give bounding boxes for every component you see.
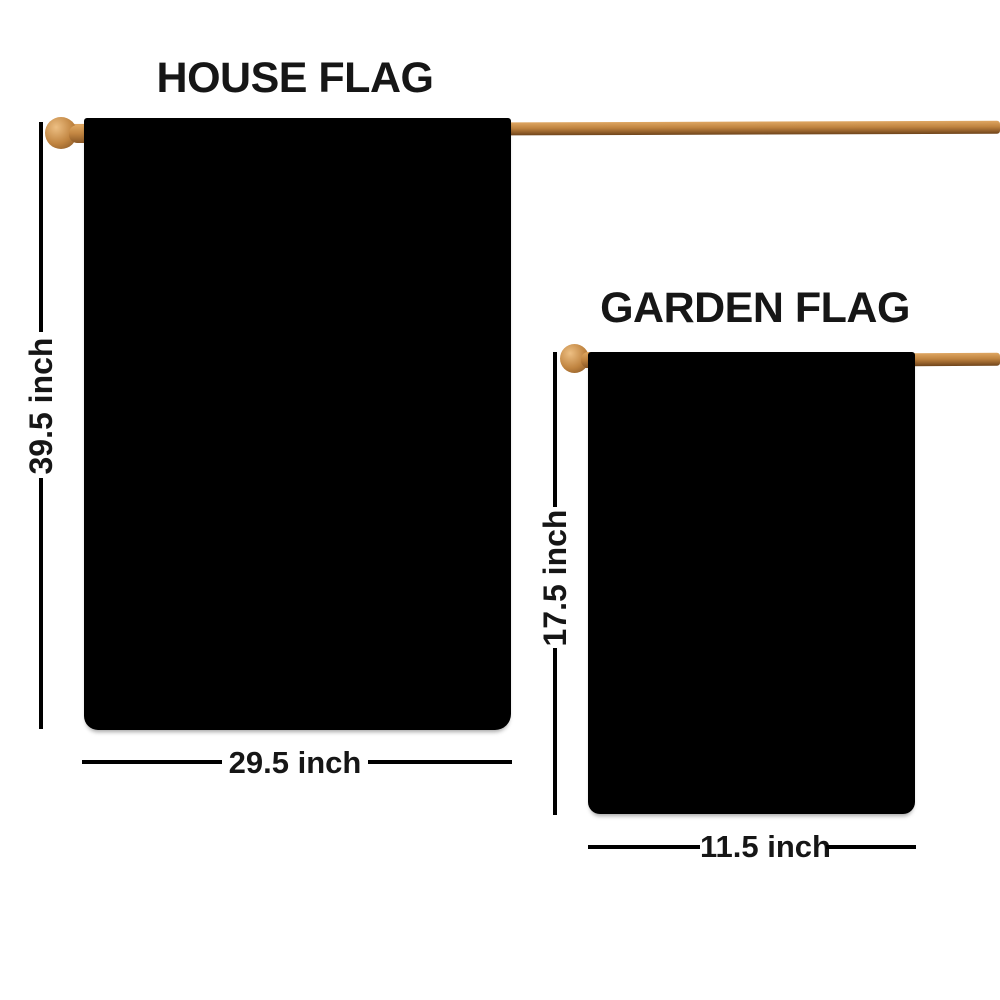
flag-size-diagram: HOUSE FLAG 39.5 inch 29.5 inch GARDEN FL… [0,0,1000,1000]
house-height-label: 39.5 inch [19,321,63,491]
garden-width-label: 11.5 inch [700,830,828,864]
house-height-line-top [39,122,43,332]
garden-flag-title: GARDEN FLAG [505,284,1000,333]
house-width-line-left [82,760,222,764]
house-width-label: 29.5 inch [222,745,368,781]
house-width-line-right [368,760,512,764]
garden-width-line-left [588,845,700,849]
garden-width-line-right [826,845,916,849]
garden-height-label: 17.5 inch [533,493,577,663]
garden-flag [588,352,915,814]
garden-height-line-bottom [553,648,557,815]
house-flag-title: HOUSE FLAG [45,54,545,103]
garden-height-line-top [553,352,557,507]
house-flag [84,118,511,730]
house-height-line-bottom [39,478,43,729]
